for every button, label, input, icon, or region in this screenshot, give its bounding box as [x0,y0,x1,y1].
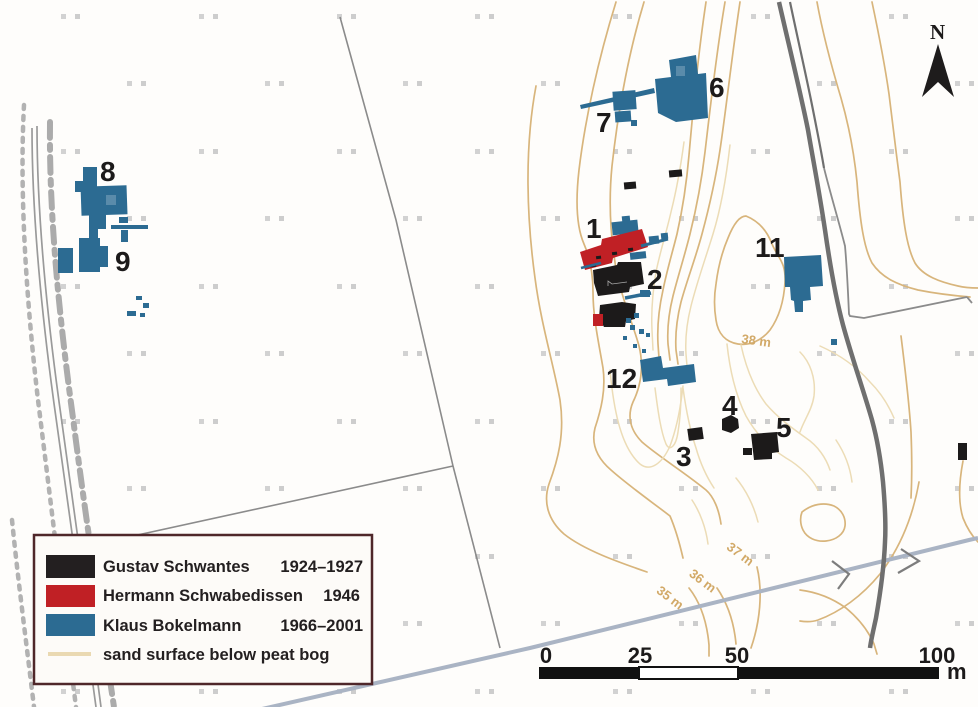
svg-text:7: 7 [596,107,612,138]
svg-text:sand surface below peat bog: sand surface below peat bog [103,646,329,664]
svg-text:1924–1927: 1924–1927 [280,558,363,576]
svg-text:1946: 1946 [323,587,360,605]
svg-text:9: 9 [115,246,131,277]
svg-text:50: 50 [725,643,749,668]
svg-text:25: 25 [628,643,652,668]
svg-text:N: N [930,20,945,44]
svg-text:11: 11 [755,232,785,263]
svg-text:1: 1 [586,213,602,244]
svg-text:m: m [947,659,967,684]
svg-text:12: 12 [606,363,637,394]
svg-text:Klaus Bokelmann: Klaus Bokelmann [103,617,241,635]
svg-text:6: 6 [709,72,725,103]
svg-text:4: 4 [722,390,738,421]
svg-text:8: 8 [100,156,116,187]
svg-text:Hermann Schwabedissen: Hermann Schwabedissen [103,587,303,605]
svg-text:0: 0 [540,643,552,668]
svg-text:Gustav Schwantes: Gustav Schwantes [103,558,250,576]
svg-text:3: 3 [676,441,692,472]
svg-text:5: 5 [776,412,792,443]
svg-text:1966–2001: 1966–2001 [280,617,363,635]
